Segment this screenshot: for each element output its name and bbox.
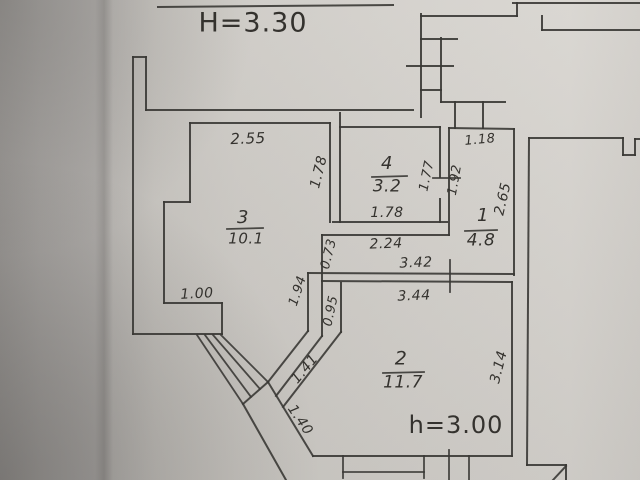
dim-room3-width: 2.55 xyxy=(230,131,266,147)
floor-plan-drawing xyxy=(0,0,640,480)
room-partition-walls xyxy=(308,113,514,456)
room-1-number: 1 xyxy=(477,207,489,225)
floor-plan-photo: H=3.30 h=3.00 3 10.1 2.55 1.78 1.00 4 3.… xyxy=(0,0,640,480)
dim-step-width: 1.00 xyxy=(180,286,214,302)
stair-hatch xyxy=(197,335,268,404)
room-3-number: 3 xyxy=(237,209,249,227)
room-2-number: 2 xyxy=(395,350,408,369)
outer-walls xyxy=(133,5,413,334)
ceiling-height-room2: h=3.00 xyxy=(409,413,504,437)
shaft-hatch xyxy=(407,3,640,128)
dim-room2-width: 3.44 xyxy=(397,288,431,303)
room-4-area: 3.2 xyxy=(373,179,402,196)
room-1-area: 4.8 xyxy=(467,233,496,250)
dim-room4-width: 1.78 xyxy=(370,206,403,220)
room-2-area: 11.7 xyxy=(383,375,423,392)
ceiling-height-overall: H=3.30 xyxy=(198,10,307,37)
room-3-area: 10.1 xyxy=(228,232,263,247)
dim-corridor-width: 2.24 xyxy=(369,236,403,251)
window-door-marks xyxy=(343,456,469,480)
dim-hall-length-top: 3.42 xyxy=(399,255,433,270)
dim-room1-width: 1.18 xyxy=(464,132,496,148)
neighbor-walls xyxy=(527,138,640,480)
room-4-number: 4 xyxy=(381,155,393,173)
